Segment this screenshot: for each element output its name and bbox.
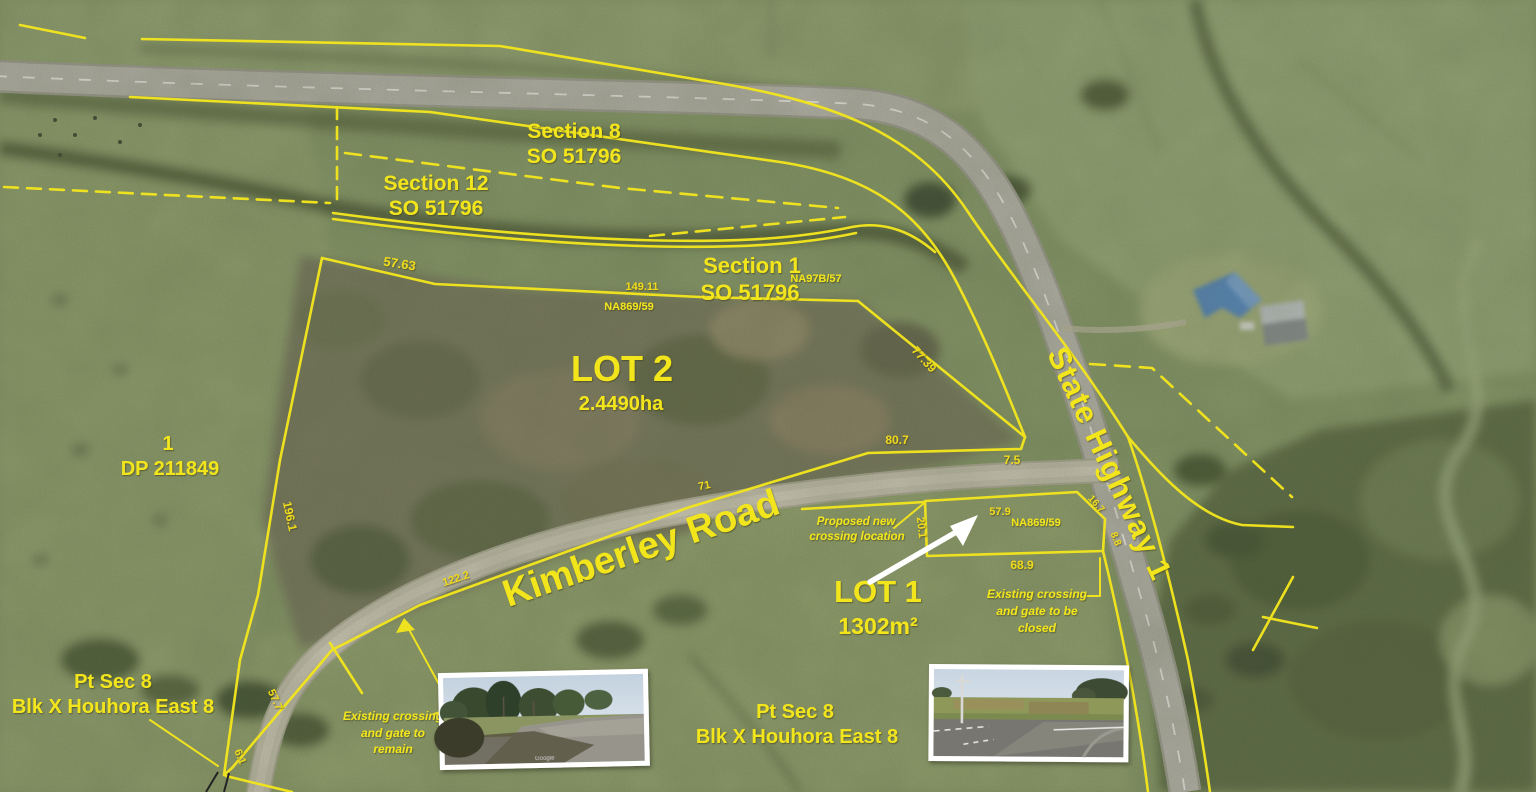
dim-149-11: 149.11 [625, 281, 658, 293]
label-lot2-name: LOT 2 [571, 348, 673, 389]
label-section12-name: Section 12 [383, 172, 488, 195]
dim-68-9: 68.9 [1010, 558, 1034, 572]
label-section8-name: Section 8 [527, 120, 621, 143]
aerial-survey-map: Section 8 SO 51796 Section 12 SO 51796 S… [0, 0, 1536, 792]
label-ptsec8-south-1: Pt Sec 8 [756, 701, 834, 723]
inset2-photo [931, 669, 1128, 757]
aerial-grain-overlay [0, 0, 1536, 792]
dim-57-9: 57.9 [989, 506, 1010, 518]
dim-7-5: 7.5 [1004, 453, 1021, 467]
inset1-photo: Google [433, 674, 645, 765]
label-ptsec8-west-2: Blk X Houhora East 8 [12, 696, 214, 718]
note-remain-3: remain [373, 742, 412, 756]
subdivision-scheme-plan: Section 8 SO 51796 Section 12 SO 51796 S… [0, 0, 1536, 792]
label-lot1-area: 1302m² [838, 613, 918, 639]
note-remain-2: and gate to [361, 726, 425, 740]
label-neighbour-plan: DP 211849 [121, 458, 220, 480]
note-closed-3: closed [1018, 621, 1057, 635]
label-section1-name: Section 1 [703, 253, 801, 278]
label-title-na869-59-lot1: NA869/59 [1011, 517, 1061, 529]
note-closed-1: Existing crossing [987, 587, 1088, 601]
dim-71: 71 [697, 479, 711, 493]
note-proposed-1: Proposed new [817, 516, 897, 528]
label-lot2-area: 2.4490ha [579, 393, 664, 415]
note-closed-2: and gate to be [996, 604, 1078, 618]
label-section8-ref: SO 51796 [527, 145, 622, 168]
label-title-na869-59-boundary: NA869/59 [604, 301, 654, 313]
label-section1-ref: SO 51796 [700, 280, 799, 305]
dim-80-7: 80.7 [885, 433, 909, 447]
note-remain-1: Existing crossing [343, 709, 444, 723]
label-ptsec8-west-1: Pt Sec 8 [74, 671, 152, 693]
label-ptsec8-south-2: Blk X Houhora East 8 [696, 726, 898, 748]
label-neighbour-lot: 1 [162, 433, 173, 455]
label-section12-ref: SO 51796 [389, 197, 484, 220]
label-title-na97b57: NA97B/57 [790, 273, 841, 285]
inset1-google-credit: Google [535, 756, 555, 762]
photo-inset-highway-intersection [928, 664, 1129, 762]
photo-inset-kimberley-crossing: Google [433, 669, 650, 770]
note-proposed-2: crossing location [809, 531, 904, 543]
